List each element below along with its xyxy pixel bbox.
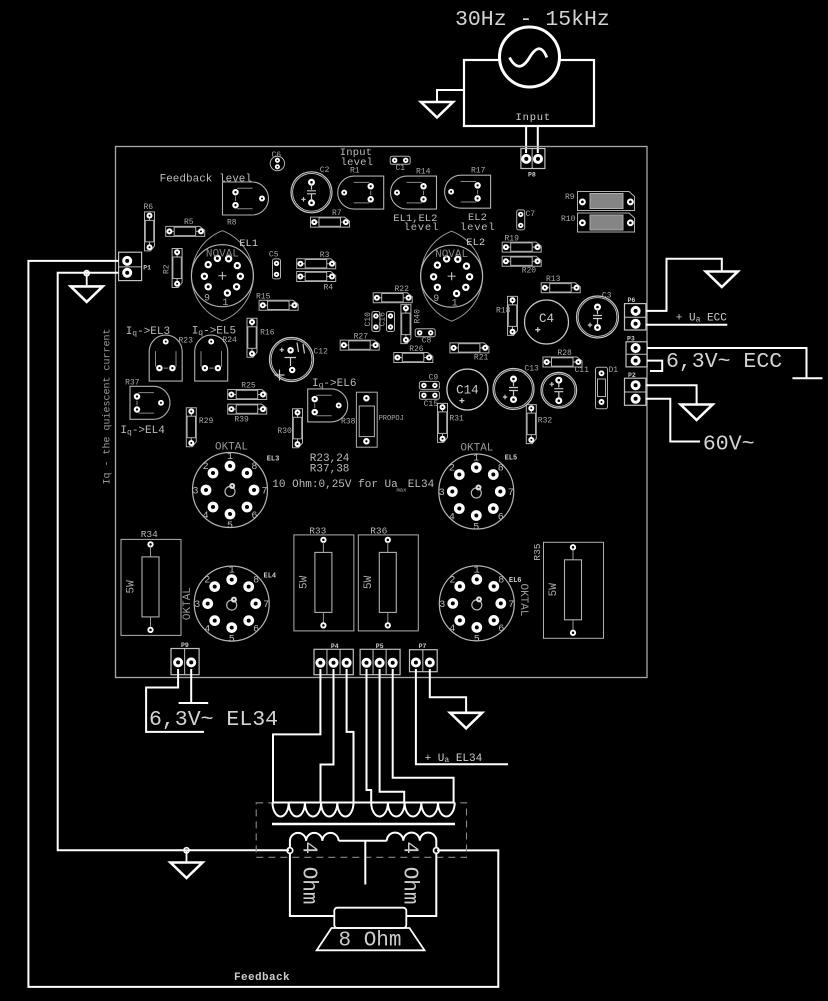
svg-text:R35: R35 xyxy=(532,543,543,560)
svg-text:C5: C5 xyxy=(269,251,279,260)
svg-text:R17: R17 xyxy=(471,167,486,176)
svg-text:R6: R6 xyxy=(144,203,154,212)
svg-text:+ Ua ECC: + Ua ECC xyxy=(676,313,727,325)
svg-text:R4: R4 xyxy=(324,284,334,293)
svg-text:C9: C9 xyxy=(429,374,439,383)
svg-text:OKTAL: OKTAL xyxy=(215,442,248,454)
svg-text:R18: R18 xyxy=(496,307,511,316)
svg-text:R8: R8 xyxy=(227,219,237,228)
svg-text:PROPOJ: PROPOJ xyxy=(379,415,404,423)
svg-text:R2: R2 xyxy=(163,264,172,274)
svg-text:level: level xyxy=(341,157,374,169)
svg-text:C7: C7 xyxy=(526,210,536,219)
svg-text:EL1: EL1 xyxy=(239,238,258,250)
svg-text:R13: R13 xyxy=(546,275,561,284)
svg-text:P6: P6 xyxy=(628,297,636,304)
svg-text:R26: R26 xyxy=(409,345,424,354)
svg-text:6,3V~ ECC: 6,3V~ ECC xyxy=(666,350,782,374)
svg-text:R31: R31 xyxy=(449,415,464,424)
svg-text:8 Ohm: 8 Ohm xyxy=(339,930,402,953)
svg-text:C4: C4 xyxy=(539,312,554,326)
svg-text:R7: R7 xyxy=(332,209,342,218)
svg-text:level: level xyxy=(460,222,496,234)
svg-text:R16: R16 xyxy=(260,329,275,338)
svg-text:R38: R38 xyxy=(341,418,356,427)
svg-text:R14: R14 xyxy=(416,168,431,177)
svg-text:OKTAL: OKTAL xyxy=(182,587,194,620)
svg-text:R20: R20 xyxy=(522,267,537,276)
svg-text:EL34: EL34 xyxy=(408,479,435,491)
svg-text:R5: R5 xyxy=(184,218,194,227)
svg-text:R37: R37 xyxy=(125,379,140,388)
svg-text:C14: C14 xyxy=(456,384,479,398)
svg-text:EL6: EL6 xyxy=(509,577,522,585)
svg-text:10 Ohm:0,25V for Ua: 10 Ohm:0,25V for Ua xyxy=(272,479,398,491)
svg-text:C16: C16 xyxy=(379,312,388,327)
svg-text:C15: C15 xyxy=(424,400,439,409)
svg-text:C10: C10 xyxy=(364,312,373,327)
svg-text:R15: R15 xyxy=(256,293,271,302)
svg-text:P9: P9 xyxy=(181,642,189,649)
svg-text:Feedback level: Feedback level xyxy=(160,174,252,186)
svg-text:C1: C1 xyxy=(396,164,406,173)
svg-text:C8: C8 xyxy=(422,337,432,346)
svg-text:R36: R36 xyxy=(370,526,387,537)
svg-text:C13: C13 xyxy=(524,365,539,374)
svg-text:Input: Input xyxy=(516,112,552,124)
svg-text:EL2: EL2 xyxy=(466,237,485,249)
svg-text:R22: R22 xyxy=(395,285,410,294)
svg-text:C11: C11 xyxy=(575,366,590,375)
svg-text:P8: P8 xyxy=(528,172,536,179)
svg-text:R9: R9 xyxy=(565,193,575,202)
svg-text:R37,38: R37,38 xyxy=(310,464,350,476)
svg-text:+ Ua EL34: + Ua EL34 xyxy=(425,753,483,765)
svg-text:OKTAL: OKTAL xyxy=(460,443,493,455)
svg-text:R33: R33 xyxy=(309,526,326,537)
svg-text:P2: P2 xyxy=(628,372,636,379)
svg-text:R34: R34 xyxy=(141,529,158,540)
svg-text:R19: R19 xyxy=(505,235,520,244)
svg-text:D1: D1 xyxy=(609,366,619,375)
svg-text:EL4: EL4 xyxy=(264,573,277,581)
svg-text:C12: C12 xyxy=(314,348,329,357)
svg-text:R21: R21 xyxy=(474,354,489,363)
svg-text:EL5: EL5 xyxy=(505,455,518,463)
svg-text:C3: C3 xyxy=(602,292,612,301)
svg-text:max: max xyxy=(397,487,408,494)
svg-text:C6: C6 xyxy=(272,151,282,160)
svg-text:C2: C2 xyxy=(320,166,330,175)
svg-text:60V~: 60V~ xyxy=(703,433,755,457)
svg-text:P7: P7 xyxy=(419,643,427,650)
svg-text:R29: R29 xyxy=(199,417,214,426)
svg-text:P1: P1 xyxy=(143,265,151,272)
svg-text:EL3: EL3 xyxy=(267,456,280,464)
svg-text:R23: R23 xyxy=(179,337,194,346)
svg-text:P4: P4 xyxy=(331,643,339,650)
svg-text:R10: R10 xyxy=(561,215,576,224)
svg-text:Iq - the quiescent current: Iq - the quiescent current xyxy=(102,328,114,484)
svg-text:4 Ohm: 4 Ohm xyxy=(297,842,320,905)
svg-text:R30: R30 xyxy=(277,427,292,436)
svg-text:level: level xyxy=(404,222,440,234)
svg-text:P5: P5 xyxy=(376,643,384,650)
svg-text:R27: R27 xyxy=(354,333,369,342)
svg-text:Feedback: Feedback xyxy=(234,972,290,984)
svg-text:R28: R28 xyxy=(557,349,572,358)
svg-text:R3: R3 xyxy=(320,251,330,260)
svg-text:R39: R39 xyxy=(234,416,249,425)
svg-text:P3: P3 xyxy=(627,336,635,343)
svg-text:6,3V~ EL34: 6,3V~ EL34 xyxy=(149,708,278,732)
svg-text:R32: R32 xyxy=(538,417,553,426)
svg-text:R40: R40 xyxy=(414,309,423,324)
svg-text:OKTAL: OKTAL xyxy=(517,583,529,616)
svg-text:R25: R25 xyxy=(241,382,256,391)
svg-text:4 Ohm: 4 Ohm xyxy=(398,842,421,905)
